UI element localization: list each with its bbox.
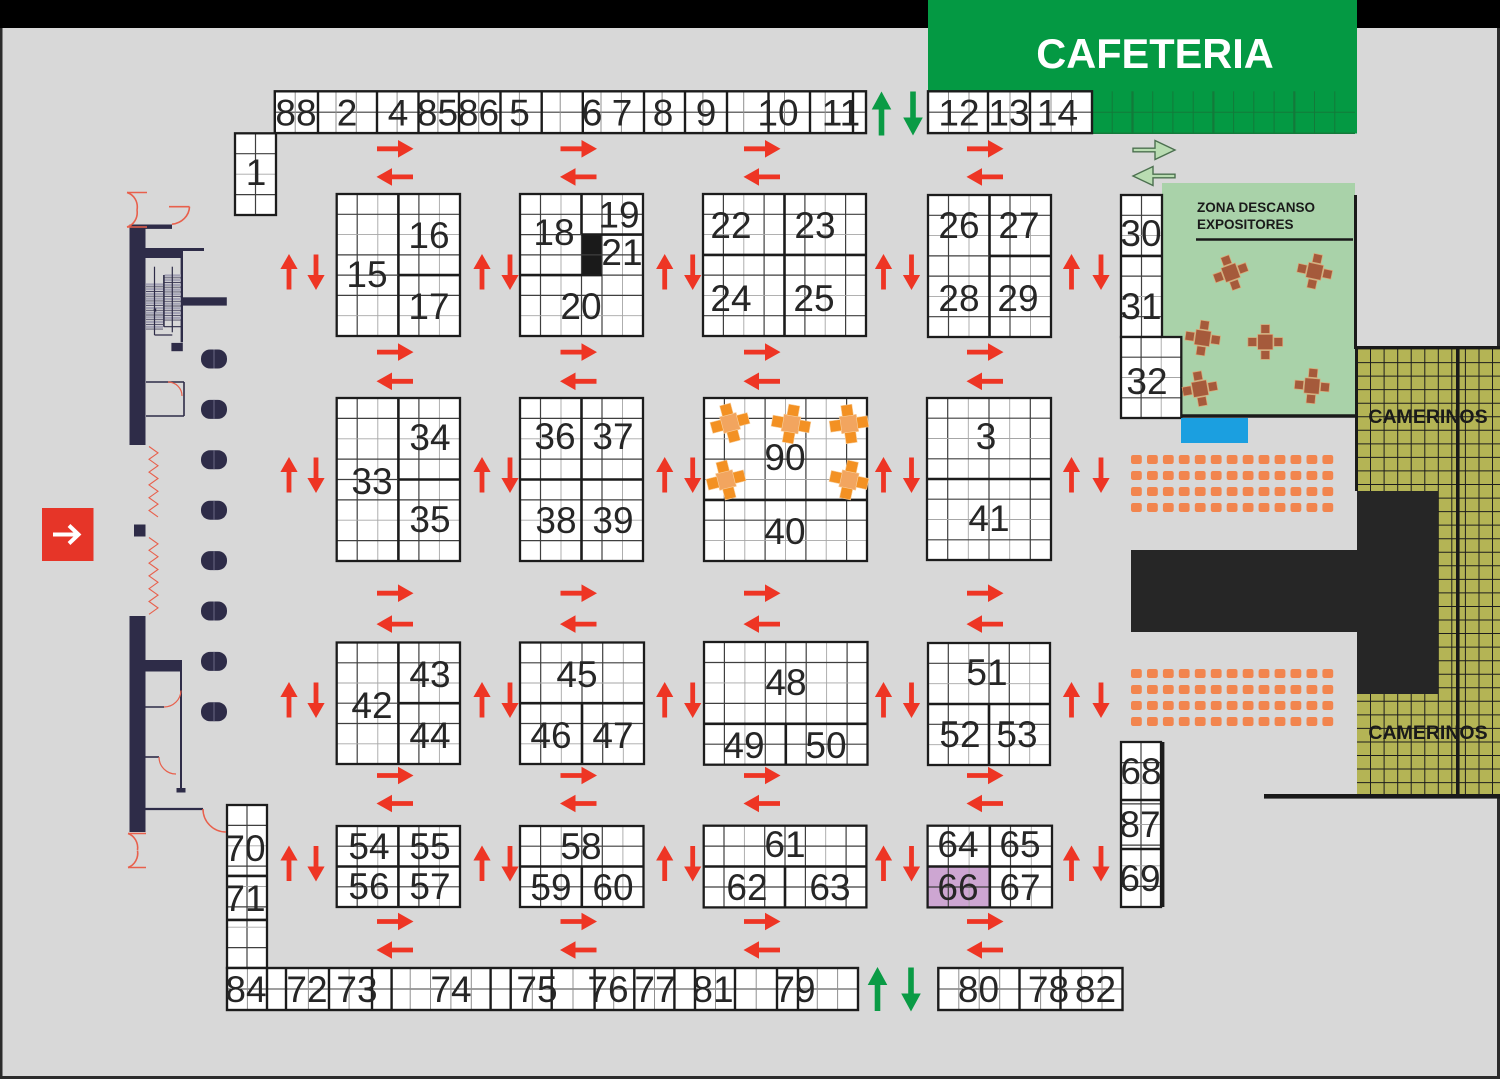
svg-text:5: 5 (509, 92, 530, 133)
svg-text:33: 33 (351, 461, 392, 502)
svg-text:4: 4 (388, 92, 409, 133)
svg-text:62: 62 (726, 867, 767, 908)
svg-text:19: 19 (598, 195, 639, 236)
svg-text:20: 20 (560, 286, 601, 327)
svg-text:16: 16 (408, 215, 449, 256)
svg-text:82: 82 (1075, 969, 1116, 1010)
svg-text:50: 50 (805, 725, 846, 766)
svg-text:49: 49 (723, 725, 764, 766)
svg-text:8: 8 (653, 92, 674, 133)
svg-text:17: 17 (408, 286, 449, 327)
svg-text:53: 53 (996, 714, 1037, 755)
svg-text:69: 69 (1119, 858, 1160, 899)
svg-text:77: 77 (634, 969, 675, 1010)
svg-text:45: 45 (556, 654, 597, 695)
svg-text:CAMERINOS: CAMERINOS (1368, 722, 1487, 744)
svg-text:86: 86 (458, 92, 499, 133)
svg-text:70: 70 (224, 828, 265, 869)
svg-text:25: 25 (793, 278, 834, 319)
svg-text:28: 28 (938, 278, 979, 319)
svg-text:57: 57 (409, 866, 450, 907)
svg-text:52: 52 (939, 714, 980, 755)
svg-text:75: 75 (516, 969, 557, 1010)
svg-text:79: 79 (774, 969, 815, 1010)
svg-text:CAMERINOS: CAMERINOS (1368, 406, 1487, 428)
svg-text:1: 1 (246, 152, 267, 193)
svg-text:6: 6 (582, 92, 603, 133)
svg-text:26: 26 (938, 205, 979, 246)
svg-text:60: 60 (592, 867, 633, 908)
svg-text:21: 21 (601, 232, 642, 273)
svg-text:71: 71 (224, 878, 265, 919)
svg-text:24: 24 (710, 278, 751, 319)
svg-text:58: 58 (560, 826, 601, 867)
svg-text:32: 32 (1126, 361, 1167, 402)
svg-text:88: 88 (275, 92, 316, 133)
svg-text:34: 34 (409, 417, 450, 458)
svg-text:ZONA DESCANSO: ZONA DESCANSO (1197, 200, 1315, 215)
svg-text:31: 31 (1120, 286, 1161, 327)
svg-text:37: 37 (592, 416, 633, 457)
svg-text:85: 85 (417, 92, 458, 133)
svg-text:12: 12 (938, 92, 979, 133)
svg-text:54: 54 (348, 826, 389, 867)
svg-text:66: 66 (937, 867, 978, 908)
svg-text:65: 65 (999, 824, 1040, 865)
svg-text:36: 36 (534, 416, 575, 457)
svg-text:23: 23 (794, 205, 835, 246)
svg-text:15: 15 (346, 254, 387, 295)
svg-text:68: 68 (1120, 751, 1161, 792)
svg-text:39: 39 (592, 500, 633, 541)
svg-text:84: 84 (225, 969, 266, 1010)
svg-text:13: 13 (988, 92, 1029, 133)
svg-text:46: 46 (530, 715, 571, 756)
svg-text:47: 47 (592, 715, 633, 756)
svg-text:3: 3 (976, 416, 997, 457)
svg-text:76: 76 (587, 969, 628, 1010)
svg-text:30: 30 (1120, 213, 1161, 254)
svg-text:CAFETERIA: CAFETERIA (1036, 30, 1273, 77)
svg-text:64: 64 (937, 824, 978, 865)
svg-text:87: 87 (1119, 804, 1160, 845)
svg-text:EXPOSITORES: EXPOSITORES (1197, 217, 1294, 232)
svg-text:80: 80 (958, 969, 999, 1010)
svg-text:2: 2 (337, 92, 358, 133)
svg-text:40: 40 (764, 511, 805, 552)
svg-text:51: 51 (966, 652, 1007, 693)
svg-text:10: 10 (757, 92, 798, 133)
svg-text:72: 72 (286, 969, 327, 1010)
svg-text:61: 61 (764, 824, 805, 865)
svg-text:43: 43 (409, 654, 450, 695)
svg-text:56: 56 (348, 866, 389, 907)
svg-text:67: 67 (999, 867, 1040, 908)
svg-text:73: 73 (336, 969, 377, 1010)
svg-text:29: 29 (997, 278, 1038, 319)
svg-text:59: 59 (530, 867, 571, 908)
svg-text:11: 11 (822, 92, 860, 133)
svg-text:78: 78 (1028, 969, 1069, 1010)
svg-text:63: 63 (809, 867, 850, 908)
svg-text:14: 14 (1037, 92, 1078, 133)
svg-text:7: 7 (612, 92, 633, 133)
svg-text:44: 44 (409, 715, 450, 756)
svg-text:55: 55 (409, 826, 450, 867)
svg-text:42: 42 (351, 685, 392, 726)
svg-text:90: 90 (764, 437, 805, 478)
svg-text:9: 9 (696, 92, 717, 133)
svg-text:18: 18 (533, 212, 574, 253)
svg-text:27: 27 (998, 205, 1039, 246)
svg-text:81: 81 (692, 969, 733, 1010)
svg-text:22: 22 (710, 205, 751, 246)
svg-text:48: 48 (765, 662, 806, 703)
svg-text:38: 38 (535, 500, 576, 541)
svg-text:74: 74 (430, 969, 471, 1010)
svg-text:41: 41 (968, 498, 1009, 539)
svg-text:35: 35 (409, 499, 450, 540)
